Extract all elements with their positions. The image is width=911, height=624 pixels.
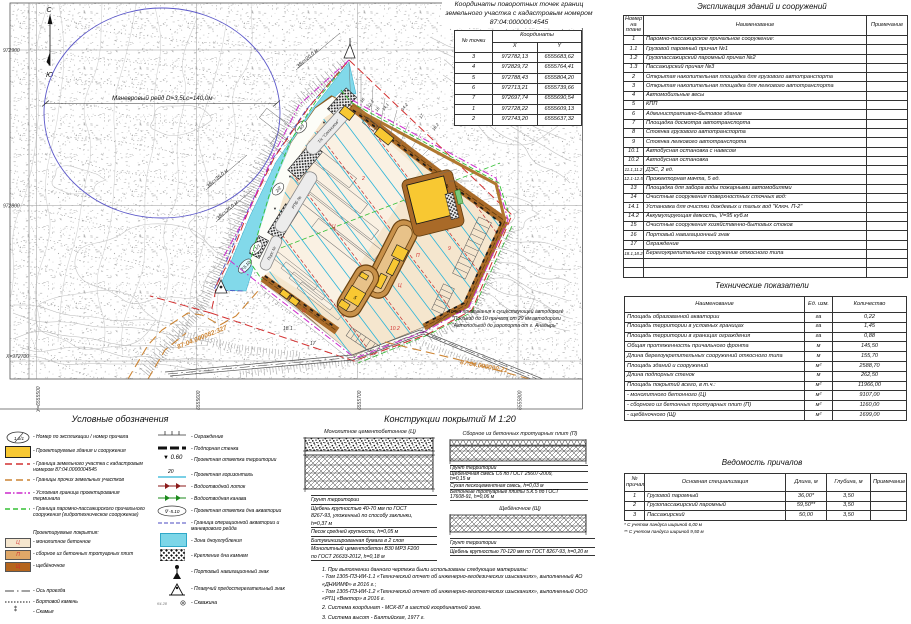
- svg-text:∇ -5.10: ∇ -5.10: [165, 509, 180, 514]
- svg-text:6555800: 6555800: [518, 390, 524, 410]
- svg-text:972800: 972800: [3, 204, 20, 210]
- svg-text:Маневровый рейд D=3,5Lc=140,0м: Маневровый рейд D=3,5Lc=140,0м: [112, 95, 213, 102]
- svg-text:"Автоподъезд до аэропорта от г: "Автоподъезд до аэропорта от г. Анадырь": [452, 323, 558, 329]
- svg-text:Ц: Ц: [302, 308, 306, 314]
- svg-text:6555600: 6555600: [196, 390, 202, 410]
- svg-text:2: 2: [361, 176, 365, 182]
- svg-text:X=972700: X=972700: [5, 354, 29, 360]
- svg-text:10.2: 10.2: [390, 326, 400, 332]
- svg-text:1.1/1: 1.1/1: [14, 436, 25, 441]
- svg-text:18.1: 18.1: [283, 326, 293, 332]
- svg-text:Ц: Ц: [398, 283, 402, 289]
- svg-text:▼: ▼: [288, 174, 292, 179]
- svg-text:6555700: 6555700: [357, 390, 363, 410]
- svg-text:▼: ▼: [273, 206, 277, 211]
- svg-text:972900: 972900: [3, 48, 20, 54]
- svg-text:б4.28: б4.28: [157, 601, 168, 606]
- svg-text:Точка примыкания к существующе: Точка примыкания к существующей автодоро…: [448, 308, 564, 315]
- svg-text:П: П: [416, 253, 420, 259]
- svg-text:20: 20: [167, 469, 174, 475]
- svg-text:У=6555500: У=6555500: [36, 386, 42, 412]
- svg-text:17: 17: [310, 341, 316, 347]
- svg-text:Ц: Ц: [332, 224, 336, 230]
- svg-text:9: 9: [448, 246, 451, 252]
- svg-text:"Подъезд до 10 причала от 29 к: "Подъезд до 10 причала от 29 км автодоро…: [452, 316, 561, 322]
